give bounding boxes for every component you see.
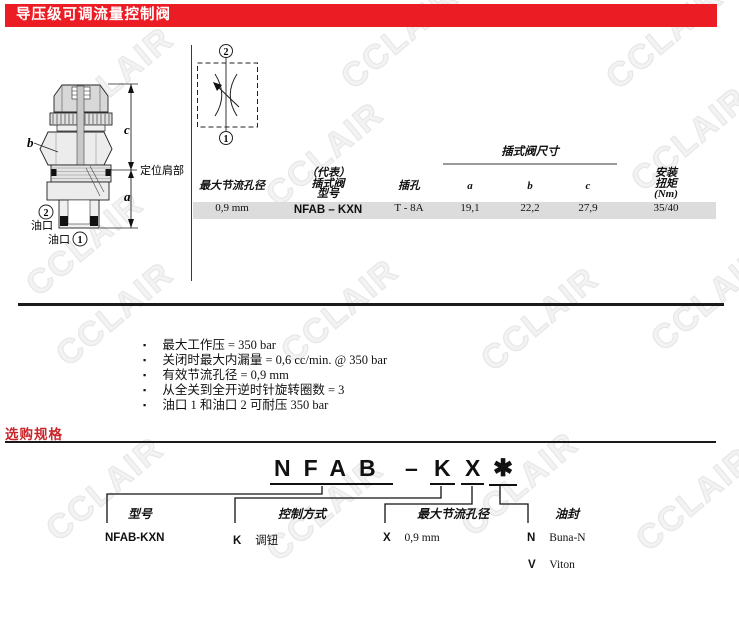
code-model-prefix: NFAB (270, 455, 393, 485)
dim-label-c: c (124, 122, 130, 137)
page-title: 导压级可调流量控制阀 (5, 4, 717, 27)
dim-label-a: a (124, 189, 131, 204)
port2-number: 2 (44, 208, 49, 219)
ordering-label-model: 型号 (108, 505, 172, 522)
ordering-option-seal-n: N Buna-N (527, 532, 586, 544)
watermark: CCLAIR (474, 259, 607, 379)
cell-a: 19,1 (446, 202, 494, 219)
hydraulic-symbol: 2 1 (190, 38, 274, 152)
cell-b: 22,2 (506, 202, 554, 219)
datasheet-page: CCLAIR CCLAIR CCLAIR CCLAIR CCLAIR CCLAI… (0, 0, 739, 632)
watermark: CCLAIR (629, 439, 739, 559)
ordering-option-model: NFAB-KXN (105, 532, 175, 544)
ordering-section-title: 选购规格 (5, 423, 63, 443)
dim-label-b: b (27, 135, 34, 150)
watermark: CCLAIR (644, 239, 739, 359)
ordering-option-orifice: X 0,9 mm (383, 532, 440, 544)
col-header-b: b (506, 181, 554, 192)
ordering-label-control: 控制方式 (258, 505, 346, 522)
cell-cavity: T - 8A (384, 202, 434, 219)
port1-label: 油口 (48, 232, 70, 246)
code-seal-star: ✱ (489, 454, 517, 486)
ordering-label-orifice: 最大节流孔径 (404, 505, 502, 522)
page-title-bar: 导压级可调流量控制阀 (5, 4, 717, 27)
code-dash: – (401, 455, 422, 483)
table-group-header-cartridge-dimensions: 插式阀尺寸 (443, 147, 617, 158)
port1-number: 1 (78, 235, 83, 246)
col-header-a: a (446, 181, 494, 192)
table-group-underline (443, 163, 617, 165)
valve-cross-section-drawing: b c a 定位肩部 2 油口 油口 1 (18, 42, 190, 254)
shoulder-label: 定位肩部 (140, 163, 184, 177)
symbol-port-bottom: 1 (224, 134, 229, 145)
ordering-option-seal-v: V Viton (528, 559, 575, 571)
col-header-model: （代表） 插式阀 型号 (290, 168, 366, 200)
section-divider (18, 303, 724, 306)
ordering-label-seal: 油封 (540, 505, 594, 522)
col-header-torque: 安装 扭矩 (Nm) (637, 168, 695, 200)
cell-orifice: 0,9 mm (180, 202, 284, 219)
cell-torque: 35/40 (637, 202, 695, 219)
port2-label: 油口 (31, 218, 53, 232)
cell-c: 27,9 (564, 202, 612, 219)
code-control-letter: K (430, 455, 455, 485)
cell-model: NFAB – KXN (276, 202, 380, 219)
ordering-option-control: K 调钮 (233, 532, 278, 548)
code-orifice-letter: X (461, 455, 484, 485)
col-header-max-orifice: 最大节流孔径 (180, 181, 284, 192)
symbol-port-top: 2 (224, 47, 229, 58)
col-header-c: c (564, 181, 612, 192)
ordering-section-rule (5, 441, 716, 443)
col-header-cavity: 插孔 (384, 181, 434, 192)
feature-item: 油口 1 和油口 2 可耐压 350 bar (143, 394, 328, 413)
